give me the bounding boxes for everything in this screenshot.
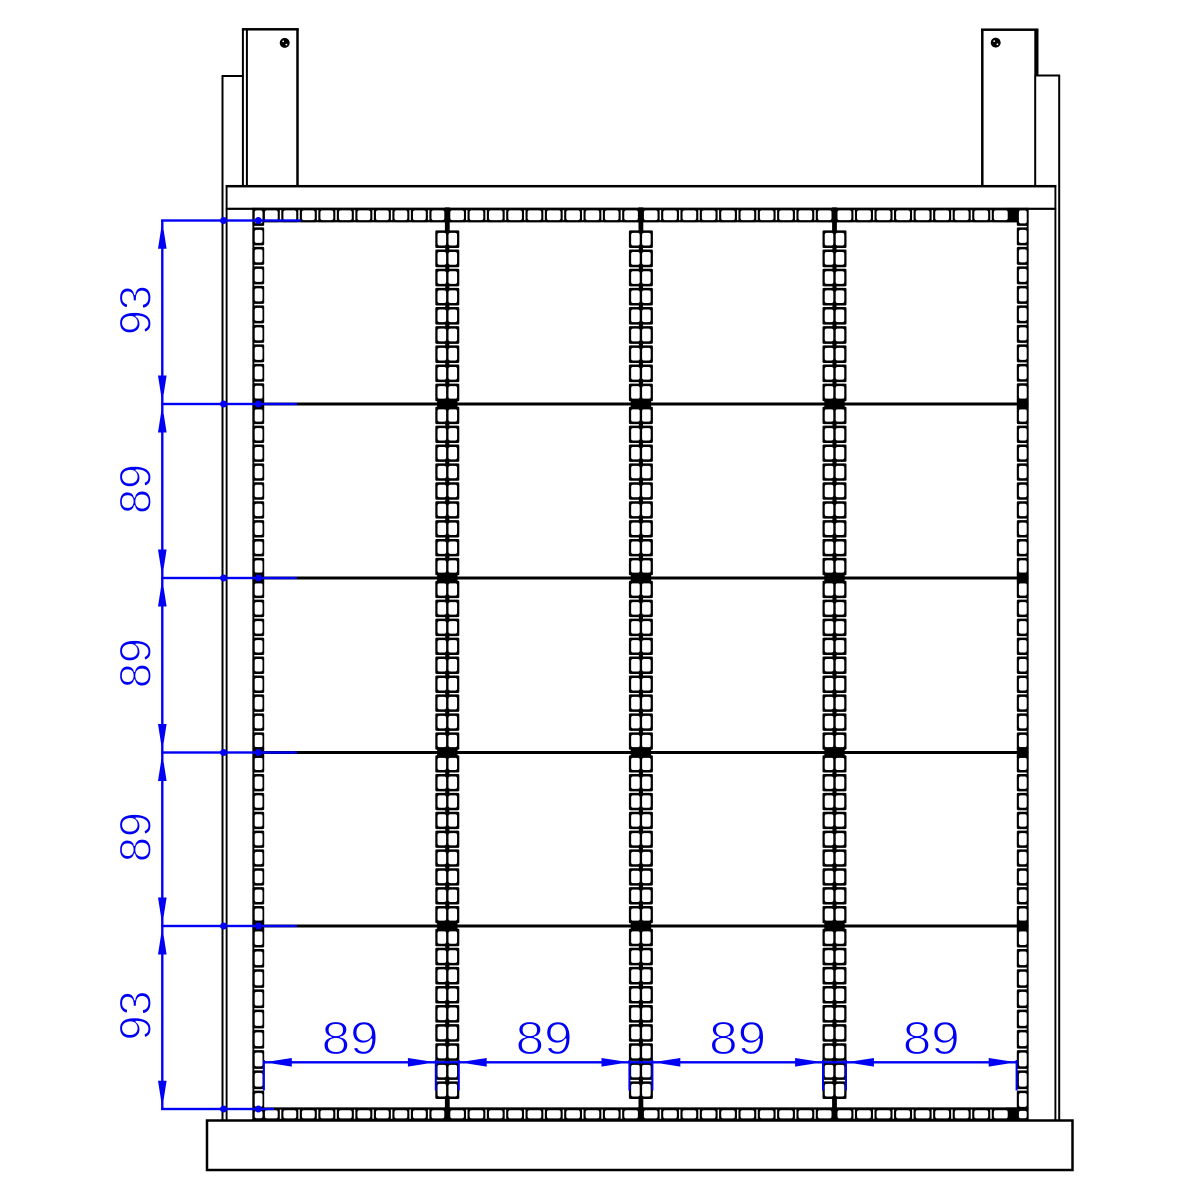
svg-text:89: 89 bbox=[112, 638, 161, 688]
svg-text:93: 93 bbox=[112, 285, 161, 335]
svg-text:89: 89 bbox=[112, 812, 161, 862]
svg-text:89: 89 bbox=[709, 1012, 766, 1064]
svg-text:89: 89 bbox=[322, 1012, 379, 1064]
svg-text:89: 89 bbox=[903, 1012, 960, 1064]
svg-text:89: 89 bbox=[112, 464, 161, 514]
svg-text:93: 93 bbox=[112, 991, 161, 1041]
svg-text:89: 89 bbox=[516, 1012, 573, 1064]
